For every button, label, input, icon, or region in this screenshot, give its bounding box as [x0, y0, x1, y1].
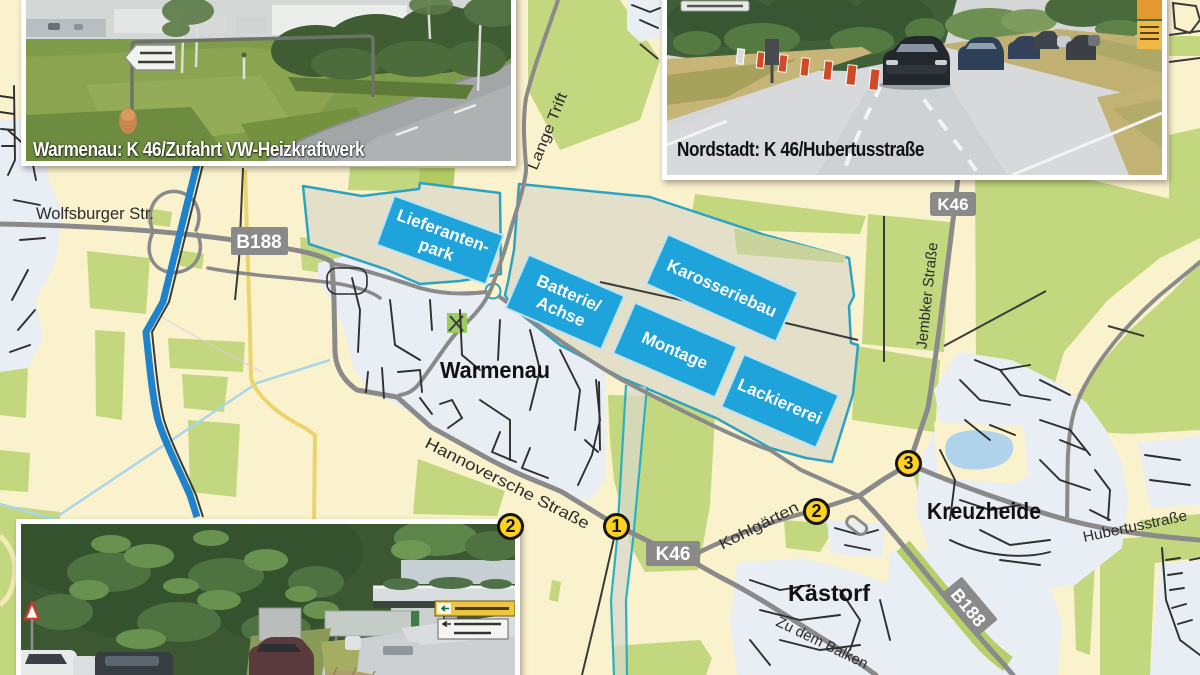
svg-text:Wolfsburger Str.: Wolfsburger Str. [36, 205, 154, 223]
svg-text:K46: K46 [937, 195, 968, 214]
svg-text:Kästorf: Kästorf [788, 580, 870, 606]
svg-text:Warmenau: Warmenau [440, 357, 550, 383]
svg-text:B188: B188 [236, 232, 281, 253]
svg-text:Kreuzheide: Kreuzheide [927, 498, 1041, 524]
svg-text:K46: K46 [656, 544, 691, 565]
